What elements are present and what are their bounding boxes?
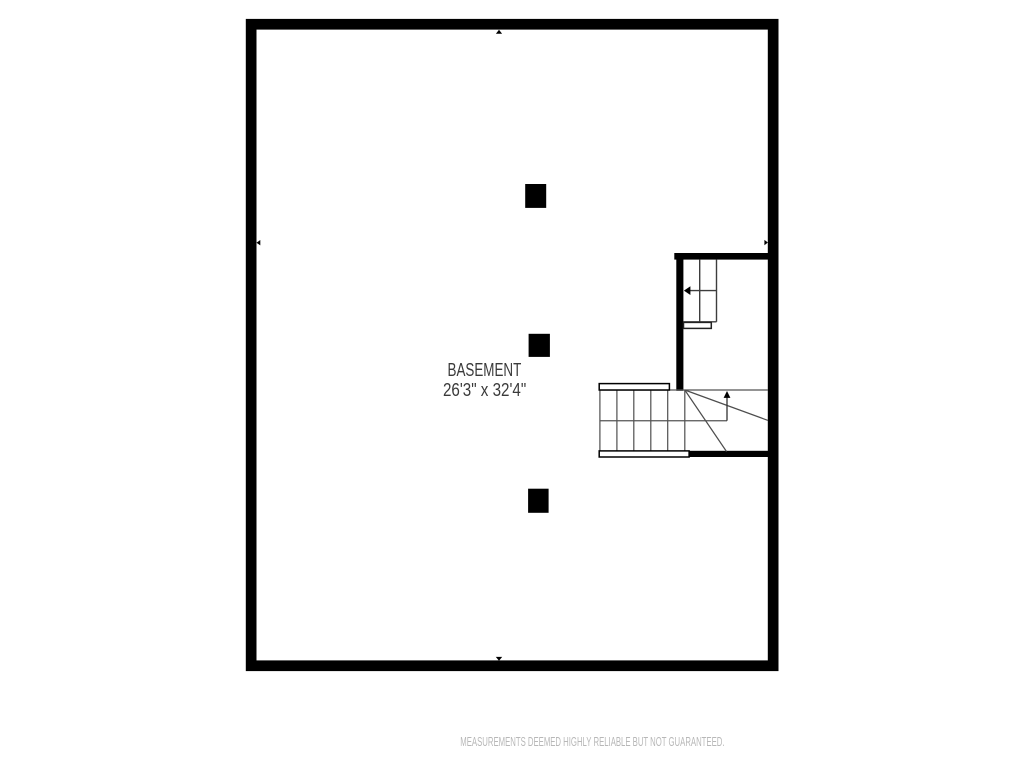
svg-text:BASEMENT: BASEMENT (448, 360, 522, 380)
svg-text:26'3" x 32'4": 26'3" x 32'4" (443, 380, 526, 400)
svg-text:MEASUREMENTS DEEMED HIGHLY REL: MEASUREMENTS DEEMED HIGHLY RELIABLE BUT … (460, 735, 724, 749)
